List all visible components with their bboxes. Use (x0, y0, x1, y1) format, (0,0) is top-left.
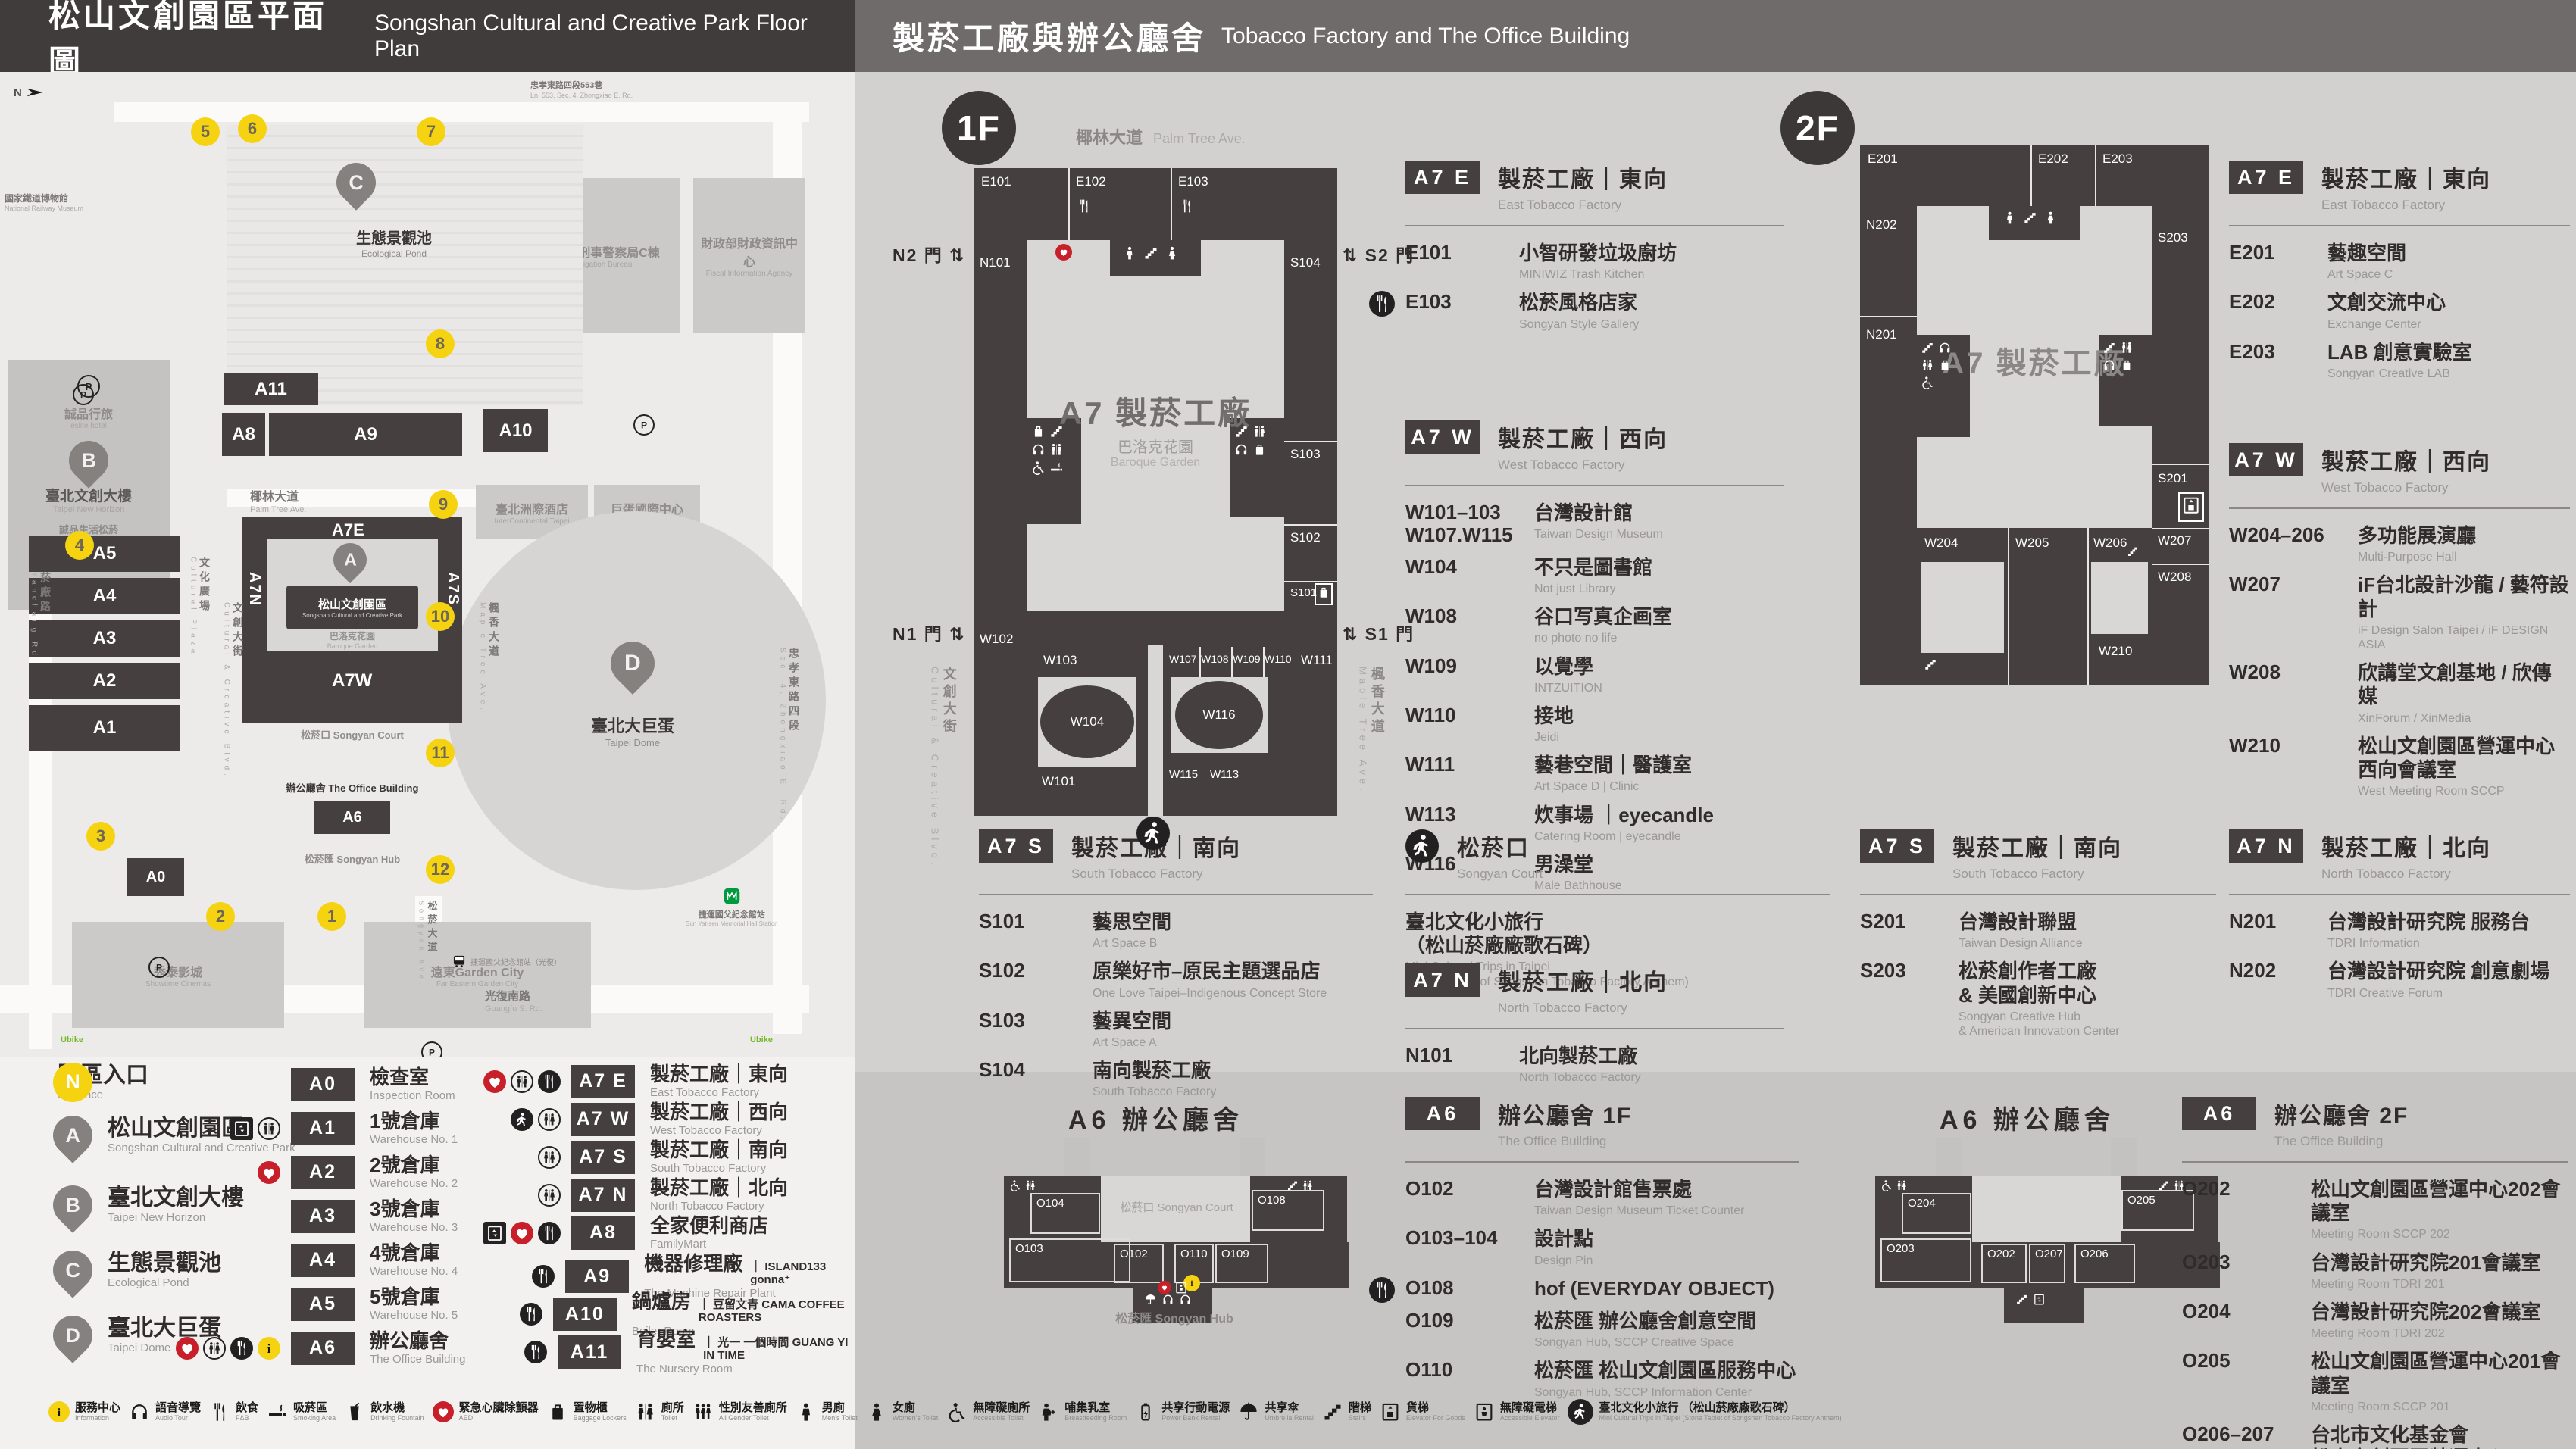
room-w104: W104 (1040, 685, 1134, 758)
facility-en: All Gender Toilet (719, 1414, 787, 1422)
wheelchair-icon (1921, 376, 1934, 389)
legend-row-zh: 鍋爐房 (632, 1291, 691, 1313)
building-code-box: A5 (291, 1288, 355, 1321)
facility-text: 階梯Stairs (1349, 1401, 1371, 1422)
facility-zh: 無障礙廁所 (973, 1401, 1030, 1414)
room-o202: O202 (1981, 1244, 2027, 1283)
item-zh: 炊事場 ｜eyecandle (1534, 804, 1714, 827)
facility-en: Elevator For Goods (1406, 1414, 1465, 1422)
item-text: 以覺學INTZUITION (1534, 655, 1602, 695)
plan-block (2152, 206, 2209, 685)
facility-text: 語音導覽Audio Tour (155, 1401, 201, 1422)
legend-row-zh: 製菸工廠｜西向 (650, 1101, 788, 1123)
item-text: 松菸匯 松山文創園區服務中心Songyan Hub, SCCP Informat… (1534, 1359, 1796, 1399)
room-label-s101: S101 (1290, 586, 1317, 599)
plan-icons (2127, 545, 2139, 561)
aed-icon (433, 1401, 454, 1422)
stairs-icon (1286, 1179, 1299, 1191)
item-text: 文創交流中心Exchange Center (2327, 291, 2446, 331)
nursing-icon (1038, 1401, 1059, 1422)
legend-building-row-A11: A11育嬰室｜ 光一 一個時間 GUANG YI IN TIMEThe Nurs… (470, 1329, 855, 1376)
item-text: 台灣設計研究院201會議室Meeting Room TDRI 201 (2311, 1251, 2540, 1291)
label-zh: 松菸匯 Songyan Hub (305, 854, 400, 866)
pond-label: 生態景觀池Ecological Pond (318, 230, 470, 260)
gate-s1: ⇅ S1 門 (1343, 620, 1415, 645)
parking: P (421, 1041, 442, 1057)
street-palm-1f: 椰林大道Palm Tree Ave. (1076, 127, 1246, 148)
label-en: Ecological Pond (361, 248, 427, 260)
section-rule (1405, 225, 1784, 226)
street-songyanave: 松菸大道Songyan Ave. (417, 901, 438, 988)
facility-locker: 置物櫃Baggage Lockers (547, 1401, 627, 1422)
plan-icons (1031, 424, 1077, 475)
item-zh: 台灣設計館售票處 (1534, 1178, 1744, 1201)
section-badge: A7 N (2229, 829, 2303, 863)
audio-icon (1031, 442, 1046, 457)
legend-building-row-A7 N: A7 N製菸工廠｜北向North Tobacco Factory (470, 1177, 788, 1213)
plan-divider (1171, 168, 1172, 240)
label-zh: 光復南路 (485, 990, 542, 1004)
building-code-box: A11 (558, 1335, 621, 1369)
map-pin-C: C (45, 1242, 101, 1298)
legend-row-zh-line: 鍋爐房｜ 豆留文青 CAMA COFFEE ROASTERS (632, 1291, 855, 1324)
fnb-icon (538, 1222, 561, 1244)
legend-row-en: The Nursery Room (636, 1363, 855, 1376)
building-code-box: A9 (565, 1260, 629, 1293)
locker-icon (1031, 424, 1046, 439)
map-pin-A: A (45, 1107, 101, 1163)
section-title-zh: 製菸工廠｜西向 (2321, 443, 2491, 476)
legend-building-row-A3: A33號倉庫Warehouse No. 3 (183, 1198, 458, 1234)
legend-row-icons (470, 1146, 561, 1169)
building-code-box: A7 W (571, 1103, 635, 1136)
item-en: Songyan Hub, SCCP Information Center (1534, 1385, 1796, 1400)
room-label-w107: W107 (1169, 653, 1197, 665)
item-en: Songyan Creative LAB (2327, 367, 2472, 381)
label-zh: 臺北大巨蛋 (591, 716, 674, 737)
item-en: Design Pin (1534, 1254, 1593, 1268)
legend-building-row-A0: A0檢查室Inspection Room (183, 1066, 455, 1102)
facility-text: 共享行動電源Power Bank Rental (1161, 1401, 1230, 1422)
wheelchair-icon (1031, 461, 1046, 475)
room-label-w204: W204 (1924, 536, 1958, 551)
item-zh: 松菸風格店家 (1519, 291, 1639, 314)
facility-umbrella: 共享傘Umbrella Rental (1238, 1401, 1314, 1422)
item-text: 松菸創作者工廠 & 美國創新中心Songyan Creative Hub & A… (1959, 960, 2120, 1038)
entrance-8: 8 (426, 329, 455, 358)
room-label-w111: W111 (1301, 653, 1333, 668)
floorplan-1f: E101E102E103N101W102S104S103S102S101A7 製… (974, 168, 1337, 816)
stairs-icon (1234, 424, 1249, 439)
audio-icon (2102, 358, 2116, 372)
section-title-en: East Tobacco Factory (2321, 198, 2491, 213)
section-title: 松菸口Songyan Court (1457, 829, 1543, 882)
label-en: Far Eastern Garden City (436, 980, 518, 988)
item-en: no photo no life (1534, 631, 1672, 645)
men-icon (2002, 211, 2017, 225)
facility-audio: 語音導覽Audio Tour (129, 1401, 201, 1422)
section-header: A7 S製菸工廠｜南向South Tobacco Factory (1860, 829, 2216, 882)
label-en: Palm Tree Ave. (250, 505, 306, 516)
section-rule (1860, 894, 2216, 895)
facility-zh: 飲食 (236, 1401, 258, 1414)
section-rule (2229, 507, 2570, 509)
facility-text: 哺集乳室Breastfeeding Room (1064, 1401, 1127, 1422)
legend-building-row-A7 E: A7 E製菸工廠｜東向East Tobacco Factory (470, 1063, 788, 1099)
room-code: E103 (1405, 291, 1519, 331)
street-palm: 椰林大道Palm Tree Ave. (250, 490, 306, 516)
section-rule (979, 894, 1373, 895)
legend-row-text: 檢查室Inspection Room (370, 1066, 455, 1102)
room-label-e103: E103 (1178, 174, 1208, 189)
label-en: Yanchang Rd. (29, 572, 39, 665)
legend-building-row-A5: A55號倉庫Warehouse No. 5 (183, 1286, 458, 1322)
section-badge: A7 S (1860, 829, 1934, 863)
facility-goods: 貨梯Elevator For Goods (1380, 1401, 1465, 1422)
legend-row-zh-line: 育嬰室｜ 光一 一個時間 GUANG YI IN TIME (636, 1329, 855, 1362)
label-en: Palm Tree Ave. (1153, 130, 1246, 148)
item-zh: hof (EVERYDAY OBJECT) (1534, 1277, 1774, 1301)
room-o207: O207 (2029, 1244, 2065, 1283)
item-text: 台灣設計館售票處Taiwan Design Museum Ticket Coun… (1534, 1178, 1744, 1218)
legend-row-zh-line: 製菸工廠｜東向 (650, 1063, 788, 1085)
facility-text: 飲水機Drinking Fountain (370, 1401, 424, 1422)
pin-wrap: D (53, 1313, 92, 1358)
wheelchair-icon (1009, 1179, 1021, 1191)
section-rule (1405, 485, 1784, 486)
plan-divider (1284, 581, 1337, 582)
room-label-w205: W205 (2015, 536, 2049, 551)
park-floorplan-poster: 松山文創園區平面圖 Songshan Cultural and Creative… (0, 0, 2576, 1449)
label-en: National Railway Museum (5, 205, 83, 213)
facility-en: Power Bank Rental (1161, 1414, 1230, 1422)
item-text: 南向製菸工廠South Tobacco Factory (1093, 1059, 1216, 1099)
section-title: 製菸工廠｜西向West Tobacco Factory (1498, 420, 1668, 473)
item-zh: iF台北設計沙龍 / 藝符設計 (2358, 573, 2570, 620)
facility-text: 飲食F&B (236, 1401, 258, 1422)
entrance-12: 12 (426, 855, 455, 884)
item-text: 台北市文化基金會 松山文創園區營運中心Taipei Culture Founda… (2311, 1423, 2568, 1449)
item-text: 接地Jeidi (1534, 704, 1574, 745)
section-title-zh: 製菸工廠｜東向 (2321, 161, 2491, 194)
section-badge: A7 E (2229, 161, 2303, 194)
legend-row-text: 5號倉庫Warehouse No. 5 (370, 1286, 458, 1322)
room-label-w110: W110 (1265, 653, 1292, 665)
section-a6-2f: A6辦公廳舍 2FThe Office BuildingO202松山文創園區營運… (2182, 1097, 2568, 1449)
pin-wrap: A (53, 1113, 92, 1158)
room-code: O206–207 (2182, 1423, 2311, 1449)
ubike-label: Ubike (61, 1035, 83, 1045)
item-en: Art Space A (1093, 1035, 1171, 1050)
section-title-en: East Tobacco Factory (1498, 198, 1668, 213)
legend-row-text: 製菸工廠｜北向North Tobacco Factory (650, 1177, 788, 1213)
bus-stop: 捷運國父紀念館站（光復） (452, 954, 561, 969)
label-en: Maple Tree Ave. (477, 602, 487, 714)
section-title-en: North Tobacco Factory (1498, 1001, 1668, 1016)
section-header: A7 W製菸工廠｜西向West Tobacco Factory (2229, 443, 2570, 495)
legend-row-en: Warehouse No. 3 (370, 1222, 458, 1235)
room-code: S104 (979, 1059, 1093, 1099)
toilet-icon (538, 1184, 561, 1207)
legend-row-text: 製菸工廠｜南向South Tobacco Factory (650, 1139, 788, 1175)
legend-row-zh: 3號倉庫 (370, 1198, 458, 1220)
plan-locker (1315, 583, 1333, 605)
room-code: O205 (2182, 1350, 2311, 1414)
plan-icons (1055, 244, 1072, 261)
entrance-4: 4 (65, 531, 94, 560)
section-rule (2229, 225, 2570, 226)
ubike-label: Ubike (750, 1035, 773, 1045)
legend-row-icons (470, 1265, 555, 1288)
legend-row-text: 全家便利商店FamilyMart (650, 1215, 768, 1251)
facility-en: Stairs (1349, 1414, 1371, 1422)
svg-text:P: P (80, 390, 86, 401)
item-text: iF台北設計沙龍 / 藝符設計iF Design Salon Taipei / … (2358, 573, 2570, 652)
legend-row-en: West Tobacco Factory (650, 1125, 788, 1138)
label-en: Fiscal Information Agency (706, 270, 793, 278)
legend-row-en: Warehouse No. 2 (370, 1178, 458, 1191)
aed-icon (483, 1070, 506, 1093)
item-en: One Love Taipei–Indigenous Concept Store (1093, 986, 1327, 1001)
building-code-box: A8 (571, 1216, 635, 1250)
section-rule (1405, 1028, 1784, 1029)
item-text: 松山文創園區營運中心202會議室Meeting Room SCCP 202 (2311, 1178, 2568, 1242)
stairs-icon (1143, 245, 1158, 261)
plan-divider (1263, 647, 1265, 677)
plan-icons (2102, 341, 2146, 372)
office-building-label: 辦公廳舍 The Office Building (288, 782, 417, 795)
list-item: S103藝異空間Art Space A (979, 1010, 1373, 1050)
acc_elev-icon (1474, 1401, 1495, 1422)
svg-text:P: P (429, 1048, 435, 1057)
item-zh: 台灣設計聯盟 (1959, 910, 2083, 934)
item-zh: 松山文創園區營運中心201會議室 (2311, 1350, 2568, 1397)
room-code: O103–104 (1405, 1227, 1534, 1267)
facility-fnb: 飲食F&B (209, 1401, 258, 1422)
list-item: O202松山文創園區營運中心202會議室Meeting Room SCCP 20… (2182, 1178, 2568, 1242)
stairs-icon (2023, 211, 2037, 225)
label-en: Songyan Ave. (417, 901, 425, 988)
map-legend: N園區入口EntranceA松山文創園區Songshan Cultural an… (0, 1057, 855, 1375)
section-title-en: North Tobacco Factory (2321, 867, 2491, 882)
label-zh: 財政部財政資訊中心 (696, 233, 802, 270)
legend-row-text: 4號倉庫Warehouse No. 4 (370, 1242, 458, 1278)
umbrella-icon (1144, 1293, 1157, 1306)
facility-zh: 飲水機 (370, 1401, 424, 1414)
legend-row-text: 製菸工廠｜東向East Tobacco Factory (650, 1063, 788, 1099)
label-zh: 文創大街 (940, 667, 958, 869)
list-item: O102台灣設計館售票處Taiwan Design Museum Ticket … (1405, 1178, 1799, 1218)
room-label-s102: S102 (1290, 530, 1321, 545)
room-label-w103: W103 (1043, 653, 1077, 668)
legend-row-icons (470, 1222, 561, 1244)
legend-row-extra: ｜ 光一 一個時間 GUANG YI IN TIME (703, 1337, 855, 1362)
item-en: Art Space C (2327, 267, 2406, 282)
parking: P (148, 957, 170, 978)
street-maple-1f: 楓香大道Maple Tree Ave. (1356, 667, 1386, 795)
facility-info: i服務中心Information (48, 1401, 120, 1422)
facility-en: Baggage Lockers (574, 1414, 627, 1422)
item-zh: 台灣設計館 (1534, 501, 1663, 525)
label-zh: 文化廣場 (198, 557, 211, 657)
room-code: W110 (1405, 704, 1534, 745)
section-title-en: The Office Building (1498, 1134, 1632, 1149)
park-map: 內政部警政署刑事警察局C棟Criminal Investigation Bure… (0, 72, 855, 1057)
plan-icons (2002, 211, 2058, 225)
stairs-icon (1921, 341, 1934, 354)
section-header: A7 N製菸工廠｜北向North Tobacco Factory (2229, 829, 2570, 882)
room-code: W109 (1405, 655, 1534, 695)
elevator-icon (2033, 1293, 2046, 1306)
item-en: Exchange Center (2327, 317, 2446, 332)
legend-row-icons (470, 1108, 561, 1131)
room-label-e101: E101 (981, 174, 1011, 189)
street-maple: 楓香大道Maple Tree Ave. (477, 602, 500, 714)
list-item: S104南向製菸工廠South Tobacco Factory (979, 1059, 1373, 1099)
section-title: 製菸工廠｜東向East Tobacco Factory (2321, 161, 2491, 213)
locker-icon (1938, 358, 1952, 372)
label-en: Baroque Garden (327, 642, 378, 651)
room-label-w101: W101 (1042, 774, 1075, 789)
plan-block (1860, 206, 1917, 685)
item-text: LAB 創意實驗室Songyan Creative LAB (2327, 341, 2472, 381)
room-o103: O103 (1009, 1238, 1130, 1282)
facility-en: Accessible Toilet (973, 1414, 1030, 1422)
section-header: 松菸口Songyan Court (1405, 829, 1830, 882)
section-header: A7 W製菸工廠｜西向West Tobacco Factory (1405, 420, 1784, 473)
section-title-zh: 辦公廳舍 1F (1498, 1097, 1632, 1130)
label-zh: 臺北洲際酒店 (496, 499, 568, 517)
stairs-icon (2102, 341, 2116, 354)
facility-zh: 語音導覽 (155, 1401, 201, 1414)
compass: N (14, 83, 45, 102)
water-icon (344, 1401, 365, 1422)
locker-icon (2120, 358, 2134, 372)
legend-building-row-A7 S: A7 S製菸工廠｜南向South Tobacco Factory (470, 1139, 788, 1175)
facility-powerbank: 共享行動電源Power Bank Rental (1135, 1401, 1230, 1422)
room-code: O203 (2182, 1251, 2311, 1291)
section-rule (2182, 1161, 2568, 1163)
building-a5: A5 (29, 536, 180, 572)
legend-row-zh-line: 機器修理廠｜ ISLAND133 gonna⁺ (644, 1253, 855, 1286)
item-zh: 欣講堂文創基地 / 欣傳媒 (2358, 661, 2570, 708)
room-code: E101 (1405, 242, 1519, 282)
item-zh: 臺北文化小旅行 （松山菸廠廠歌石碑） (1405, 910, 1689, 957)
item-zh: 台北市文化基金會 松山文創園區營運中心 (2311, 1423, 2568, 1449)
acc_elev-icon (1174, 1281, 1188, 1294)
building-code-box: A3 (291, 1200, 355, 1233)
room-o203: O203 (1880, 1238, 1971, 1282)
plan-courtyard (2091, 562, 2148, 634)
label-en: Guangfu S. Rd. (485, 1004, 542, 1015)
facility-en: Mini Cultural Trips in Taipei (Stone Tab… (1599, 1414, 1841, 1422)
road (114, 102, 809, 122)
facility-en: Umbrella Rental (1265, 1414, 1314, 1422)
label-en: Showtime Cinemas (145, 980, 211, 988)
legend-row-extra: ｜ ISLAND133 gonna⁺ (750, 1261, 855, 1286)
list-item: O204台灣設計研究院202會議室Meeting Room TDRI 202 (2182, 1301, 2568, 1341)
section-title: 製菸工廠｜北向North Tobacco Factory (2321, 829, 2491, 882)
item-zh: 台灣設計研究院202會議室 (2311, 1301, 2540, 1324)
list-item: S101藝思空間Art Space B (979, 910, 1373, 951)
list-item: E203LAB 創意實驗室Songyan Creative LAB (2229, 341, 2570, 381)
item-zh: 松菸匯 松山文創園區服務中心 (1534, 1359, 1796, 1382)
list-item: O206–207台北市文化基金會 松山文創園區營運中心Taipei Cultur… (2182, 1423, 2568, 1449)
list-item: O103–104設計點Design Pin (1405, 1227, 1799, 1267)
trip-icon (1568, 1399, 1593, 1425)
list-item: S203松菸創作者工廠 & 美國創新中心Songyan Creative Hub… (1860, 960, 2216, 1038)
locker-icon (547, 1401, 568, 1422)
legend-row-en: Inspection Room (370, 1090, 455, 1103)
label-zh: 巴洛克花園 (330, 631, 375, 642)
item-zh: 小智研發垃圾廚坊 (1519, 242, 1677, 265)
facility-zh: 廁所 (661, 1401, 684, 1414)
legend-row-icons (183, 1117, 280, 1140)
women-icon (1165, 245, 1180, 261)
facility-trip: 臺北文化小旅行 （松山菸廠廠歌石碑）Mini Cultural Trips in… (1568, 1399, 1841, 1425)
legend-building-row-A6: iA6辦公廳舍The Office Building (183, 1330, 465, 1366)
item-zh: 不只是圖書館 (1534, 556, 1652, 579)
list-item: E103松菸風格店家Songyan Style Gallery (1405, 291, 1784, 331)
page-title-left-zh: 松山文創園區平面圖 (48, 0, 359, 83)
taipei-dome-shape (447, 511, 826, 890)
building-code-box: A4 (291, 1244, 355, 1277)
section-title: 製菸工廠｜西向West Tobacco Factory (2321, 443, 2491, 495)
mrt-station: 捷運國父紀念館站Sun Yat-sen Memorial Hall Statio… (686, 886, 778, 927)
facility-zh: 共享行動電源 (1161, 1401, 1230, 1414)
building-a3: A3 (29, 620, 180, 657)
label-zh: 松菸口 Songyan Court (301, 729, 404, 742)
legend-row-icons (470, 1184, 561, 1207)
room-label-s201: S201 (2158, 471, 2188, 486)
songyan-court-marker (1136, 817, 1170, 851)
plan-divider (2095, 145, 2096, 206)
list-item: W210松山文創園區營運中心 西向會議室West Meeting Room SC… (2229, 735, 2570, 799)
legend-row-zh-line: 製菸工廠｜北向 (650, 1177, 788, 1199)
legend-row-icons: i (183, 1337, 280, 1360)
p-icon: P (633, 414, 655, 436)
room-label-w210: W210 (2099, 644, 2132, 659)
facility-zh: 共享傘 (1265, 1401, 1314, 1414)
p-icon: P (421, 1041, 442, 1057)
item-zh: 藝巷空間｜醫護室 (1534, 754, 1692, 777)
room-code: S201 (1860, 910, 1959, 951)
facility-text: 貨梯Elevator For Goods (1406, 1401, 1465, 1422)
facility-en: Men's Toilet (822, 1414, 858, 1422)
toilet-icon (538, 1108, 561, 1131)
gate-n1: N1 門 ⇅ (893, 620, 965, 645)
item-en: Meeting Room TDRI 202 (2311, 1326, 2540, 1341)
item-en: Taiwan Design Museum Ticket Counter (1534, 1204, 1744, 1218)
building-code-box: A7 S (571, 1141, 635, 1174)
label-en: Maple Tree Ave. (1356, 667, 1368, 795)
facility-zh: 貨梯 (1406, 1401, 1465, 1414)
legend-row-zh-line: 製菸工廠｜南向 (650, 1139, 788, 1161)
facility-en: AED (459, 1414, 539, 1422)
toilet-icon (1252, 424, 1267, 439)
item-text: 欣講堂文創基地 / 欣傳媒XinForum / XinMedia (2358, 661, 2570, 726)
fnb-icon (1369, 291, 1395, 317)
pin-wrap: C (53, 1248, 92, 1293)
list-item: O205松山文創園區營運中心201會議室Meeting Room SCCP 20… (2182, 1350, 2568, 1414)
section-header: A7 S製菸工廠｜南向South Tobacco Factory (979, 829, 1373, 882)
pin-wrap: B (69, 441, 108, 480)
item-en: Songyan Creative Hub & American Innovati… (1959, 1010, 2120, 1038)
room-code: S101 (979, 910, 1093, 951)
facility-text: 無障礙電梯Accessible Elevator (1500, 1401, 1560, 1422)
facility-wheelchair: 無障礙廁所Accessible Toilet (946, 1401, 1030, 1422)
room-code: O102 (1405, 1178, 1534, 1218)
